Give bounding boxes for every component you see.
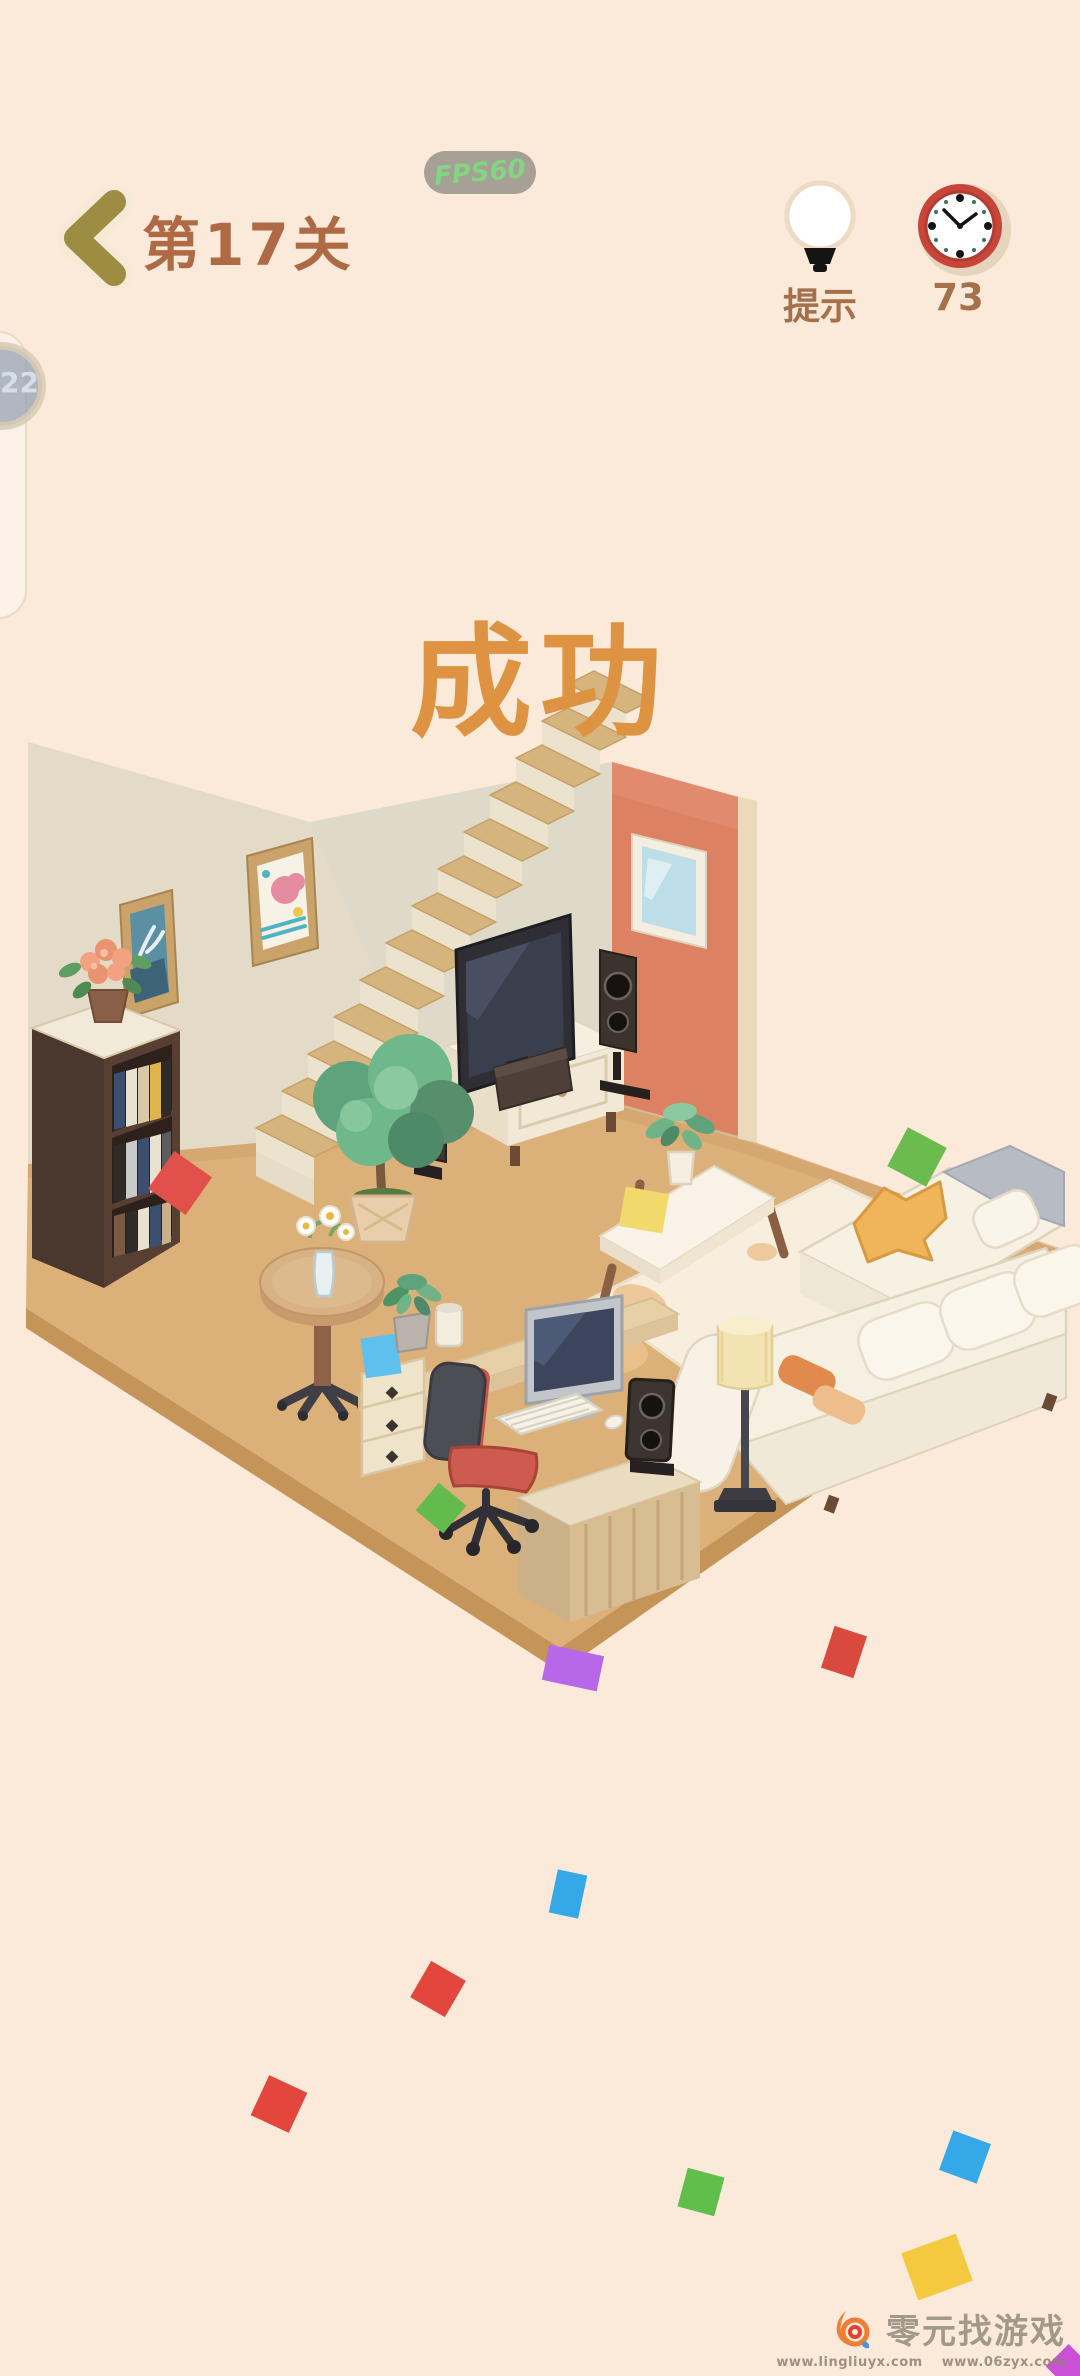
- room-scene[interactable]: [0, 0, 1080, 2376]
- confetti-piece: [251, 2075, 308, 2133]
- confetti-piece: [677, 2168, 724, 2216]
- widget-badge-value: 22: [0, 366, 40, 399]
- confetti-piece: [410, 1961, 466, 2017]
- confetti-piece: [549, 1869, 587, 1918]
- back-button[interactable]: [52, 188, 142, 288]
- yellow-note[interactable]: [619, 1186, 669, 1233]
- wall-clock-icon: [908, 174, 1018, 284]
- hint-label: 提示: [770, 276, 870, 330]
- watermark-url-secondary: www.06zyx.com: [942, 2355, 1066, 2370]
- timer-value: 73: [908, 276, 1008, 319]
- desk-speaker[interactable]: [626, 1379, 674, 1476]
- watermark-urls: www.lingliuyx.com www.06zyx.com: [762, 2355, 1066, 2370]
- confetti-piece: [821, 1626, 867, 1678]
- blue-note[interactable]: [360, 1334, 401, 1379]
- door-window: [632, 834, 706, 948]
- confetti-piece: [542, 1645, 604, 1692]
- flame-logo-icon: [832, 2305, 878, 2353]
- desk-cup[interactable]: [436, 1303, 462, 1346]
- watermark: 零元找游戏 www.lingliuyx.com www.06zyx.com: [762, 2304, 1066, 2370]
- fps-badge: FPS60: [424, 151, 536, 194]
- confetti-piece: [939, 2130, 991, 2183]
- books: [114, 1059, 171, 1257]
- wall-picture-pink[interactable]: [247, 838, 318, 966]
- confetti-piece: [901, 2234, 973, 2301]
- success-banner: 成功: [0, 622, 1080, 744]
- level-label: 第17关: [142, 198, 355, 282]
- fps-badge-text: FPS60: [433, 154, 527, 192]
- light-bulb-icon[interactable]: [778, 172, 862, 278]
- watermark-site-name: 零元找游戏: [886, 2304, 1066, 2353]
- watermark-url-primary: www.lingliuyx.com: [776, 2355, 922, 2370]
